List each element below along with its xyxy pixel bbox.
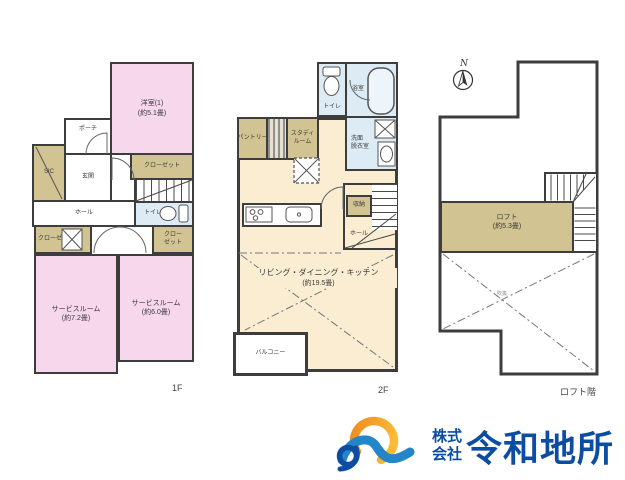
senmen-label-1: 洗面 (351, 136, 363, 144)
room-sic-1f: SIC (32, 144, 66, 202)
room-bath-2f: 浴室 (345, 62, 398, 118)
compass-north-label: N (459, 59, 469, 69)
room-senmen-2f: 洗面 脱衣室 (345, 116, 398, 171)
senmen-label-2: 脱衣室 (351, 144, 369, 152)
logo-company-name-text: 令和地所 (466, 428, 614, 469)
room-service1-1f: サービスルーム (約7.2畳) (34, 254, 118, 374)
pantry-label: パントリー (237, 135, 267, 143)
ldk-label: リビング・ダイニング・キッチン (240, 268, 397, 279)
porch-label: ポーチ (79, 126, 97, 134)
room-balcony-2f: バルコニー (233, 332, 308, 376)
loft-stairs-treads (551, 174, 596, 241)
ldk-label-block: リビング・ダイニング・キッチン (約19.5畳) (240, 268, 397, 288)
service1-size: (約7.2畳) (62, 314, 90, 323)
room-genkan-1f: 玄関 (64, 153, 112, 202)
floor-label-1f: 1F (172, 383, 183, 393)
closet-left-label: クローゼット (38, 236, 74, 244)
logo-company-type-line1: 株式 (432, 427, 462, 445)
sic-label: SIC (44, 169, 54, 177)
floorplan-canvas: 洋室(1) (約5.1畳) クローゼット ポーチ SIC 玄関 ホール トイレ … (0, 0, 625, 480)
room-yoshitsu-label: 洋室(1) (141, 99, 164, 108)
logo-mark (340, 414, 411, 469)
study-label-1: スタディ (291, 131, 315, 139)
room-study-2f: スタディ ルーム (286, 117, 319, 160)
floor-label-loft: ロフト階 (560, 385, 596, 398)
loft-label: ロフト (467, 213, 547, 222)
closet-right-label-2: ゼット (164, 240, 182, 248)
room-hall-1f: ホール (32, 200, 136, 227)
hall-2f-label: ホール (344, 230, 374, 238)
service2-label: サービスルーム (132, 299, 181, 308)
logo-company-type2: 会社 (432, 445, 462, 463)
room-pantry-2f: パントリー (237, 117, 268, 160)
logo-company-type: 株式 (432, 427, 462, 445)
closet-right-label-1: クロー (164, 232, 182, 240)
toilet-2f-label: トイレ (323, 104, 341, 112)
room-porch-1f: ポーチ (64, 118, 112, 155)
shuno-label: 収納 (353, 202, 365, 210)
room-service2-1f: サービスルーム (約6.0畳) (118, 254, 194, 362)
service1-door-arc (94, 227, 120, 253)
company-logo: 株式 会社 令和地所 (332, 414, 620, 478)
compass-icon: N (454, 59, 473, 90)
room-toilet-2f: トイレ (317, 62, 347, 117)
bath-label: 浴室 (352, 86, 364, 94)
logo-company-name: 令和地所 (466, 428, 614, 469)
logo-company-type-line2: 会社 (432, 445, 462, 463)
stairs-2f-treads (372, 184, 397, 230)
room-yoshitsu-1f: 洋室(1) (約5.1畳) (110, 62, 194, 155)
floor-label-2f: 2F (378, 385, 389, 395)
service1-label: サービスルーム (52, 305, 101, 314)
service2-door-arc (120, 227, 146, 253)
hall-1f-label: ホール (75, 210, 93, 218)
loft-size: (約5.3畳) (467, 222, 547, 231)
genkan-label: 玄関 (82, 174, 94, 182)
toilet-1f-label: トイレ (144, 210, 162, 218)
closet-top-label: クローゼット (144, 163, 180, 171)
desk-counter-2f (266, 117, 288, 160)
kitchen-counter-2f (242, 203, 322, 227)
balcony-label: バルコニー (256, 350, 286, 358)
loft-void-lines (443, 254, 594, 371)
room-toilet-1f: トイレ (134, 201, 194, 227)
void-label: 吹抜 (490, 291, 514, 298)
stairs-1f (134, 178, 194, 203)
study-label-2: ルーム (294, 139, 312, 147)
loft-label-block: ロフト (約5.3畳) (467, 213, 547, 232)
room-shuno-2f: 収納 (346, 195, 372, 217)
ldk-size: (約19.5畳) (240, 279, 397, 288)
room-closet-left-1f: クローゼット (34, 225, 92, 254)
room-yoshitsu-size: (約5.1畳) (138, 109, 166, 118)
service2-size: (約6.0畳) (142, 308, 170, 317)
room-closet-top-1f: クローゼット (130, 153, 194, 180)
loft-stairwell (545, 173, 597, 252)
room-closet-right-1f: クロー ゼット (152, 225, 194, 254)
